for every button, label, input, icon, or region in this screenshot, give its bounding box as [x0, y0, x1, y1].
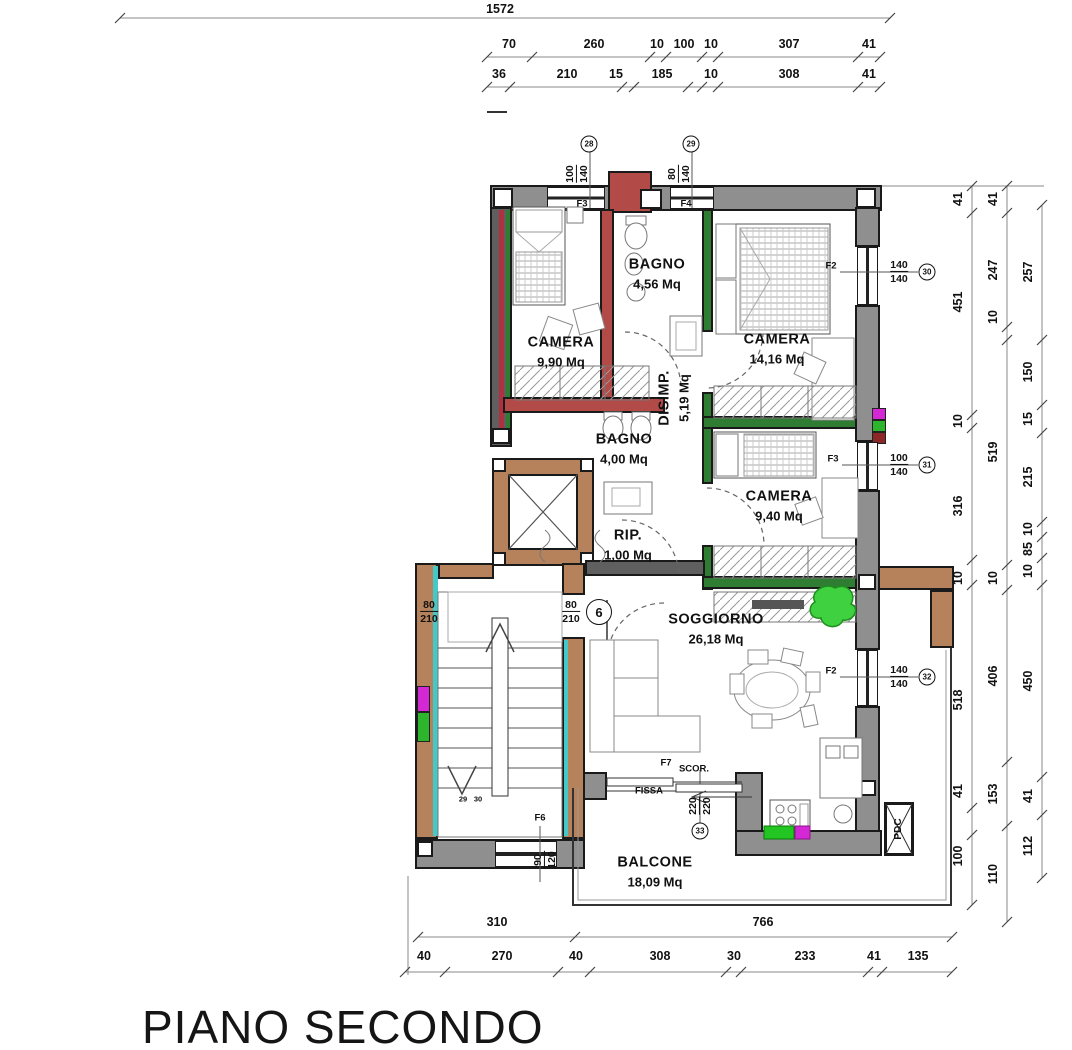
dim-label: 316	[952, 496, 965, 517]
dim-label: 270	[492, 950, 513, 963]
window-size-label: 100140	[890, 452, 908, 478]
door-type-scor: SCOR.	[679, 764, 709, 774]
furniture-kitchen	[764, 738, 862, 839]
window-tag-f6: F6	[534, 813, 545, 823]
dim-label: 41	[862, 38, 876, 51]
window-size-label: 140140	[890, 664, 908, 690]
dim-label: 260	[584, 38, 605, 51]
window-size-label: 80140	[666, 165, 692, 183]
dim-label: 406	[987, 666, 1000, 687]
dim-label: 15	[1022, 412, 1035, 426]
dim-label: 257	[1022, 262, 1035, 283]
opening-number-badge: 32	[919, 669, 936, 686]
dimension-lines	[120, 18, 1044, 975]
room-label-balcone: BALCONE18,09 Mq	[617, 853, 692, 890]
stair-step-mark: 30	[474, 795, 482, 803]
dim-label: 100	[674, 38, 695, 51]
window-tag-f3-right: F3	[827, 454, 838, 464]
dim-label: 766	[753, 916, 774, 929]
dim-label: 153	[987, 784, 1000, 805]
dim-label: 70	[502, 38, 516, 51]
dim-label: 185	[652, 68, 673, 81]
dim-label: 233	[795, 950, 816, 963]
floor-plan-drawing	[0, 0, 1072, 1050]
dim-label: 518	[952, 690, 965, 711]
floor-plan-page: 1572 70 260 10 100 10 307 41 36 210 15 1…	[0, 0, 1072, 1050]
room-label-soggiorno: SOGGIORNO26,18 Mq	[668, 610, 764, 647]
dim-label: 100	[952, 846, 965, 867]
door-tag-f7: F7	[660, 758, 671, 768]
dim-label: 308	[650, 950, 671, 963]
dimension-ticks	[115, 13, 1047, 977]
dim-label: 40	[569, 950, 583, 963]
dim-label: 10	[704, 38, 718, 51]
furniture-camera2	[714, 224, 856, 420]
room-label-bagno1: BAGNO4,56 Mq	[629, 255, 685, 292]
pdc-label: PDC	[894, 818, 904, 839]
room-label-disimpegno: DISIMP.5,19 Mq	[655, 370, 692, 426]
window-tag-f2-lower: F2	[825, 666, 836, 676]
dim-label: 210	[557, 68, 578, 81]
dim-label: 10	[952, 571, 965, 585]
dim-label: 10	[1022, 564, 1035, 578]
dim-label: 450	[1022, 671, 1035, 692]
elevator-cross	[508, 474, 578, 550]
window-size-label: 90120	[532, 851, 558, 869]
dim-label: 41	[1022, 789, 1035, 803]
door-size-label: 220220	[687, 797, 713, 815]
room-label-camera1: CAMERA9,90 Mq	[528, 333, 595, 370]
dim-label: 110	[987, 864, 1000, 884]
dim-label: 41	[862, 68, 876, 81]
door-size-label: 80210	[420, 599, 438, 625]
dim-label: 85	[1022, 542, 1035, 556]
entry-door-number-badge: 6	[586, 599, 612, 625]
dim-label: 40	[417, 950, 431, 963]
dim-label: 247	[987, 260, 1000, 281]
window-tag-f3-top: F3	[576, 199, 587, 209]
dim-label: 150	[1022, 362, 1035, 383]
rip-folding-door	[540, 530, 605, 562]
dim-label: 112	[1022, 836, 1035, 856]
dim-label: 1572	[486, 3, 514, 16]
room-label-camera2: CAMERA14,16 Mq	[744, 330, 811, 367]
dim-label: 30	[727, 950, 741, 963]
stair-step-mark: 29	[459, 795, 467, 803]
door-size-label: 80210	[562, 599, 580, 625]
room-label-camera3: CAMERA9,40 Mq	[746, 487, 813, 524]
dim-label: 310	[487, 916, 508, 929]
opening-number-badge: 29	[683, 136, 700, 153]
dim-label: 135	[908, 950, 929, 963]
opening-number-badge: 28	[581, 136, 598, 153]
dim-label: 41	[952, 192, 965, 206]
window-tag-f4-top: F4	[680, 199, 691, 209]
dim-label: 215	[1022, 467, 1035, 488]
dim-label: 10	[987, 571, 1000, 585]
dim-label: 10	[987, 310, 1000, 324]
sliding-door-f7	[607, 778, 752, 803]
window-size-label: 100140	[564, 165, 590, 183]
dim-label: 41	[952, 784, 965, 798]
dim-label: 10	[704, 68, 718, 81]
dim-label: 41	[987, 192, 1000, 206]
window-size-label: 140140	[890, 259, 908, 285]
dim-label: 307	[779, 38, 800, 51]
opening-number-badge: 30	[919, 264, 936, 281]
dim-label: 519	[987, 442, 1000, 463]
dim-label: 41	[867, 950, 881, 963]
dim-label: 308	[779, 68, 800, 81]
page-title: PIANO SECONDO	[142, 1000, 544, 1050]
dim-label: 10	[650, 38, 664, 51]
staircase	[438, 592, 562, 837]
room-label-ripostiglio: RIP.1,00 Mq	[604, 526, 652, 563]
opening-number-badge: 33	[692, 823, 709, 840]
dim-label: 10	[952, 414, 965, 428]
door-fixed-label: FISSA	[635, 786, 663, 796]
dim-label: 10	[1022, 522, 1035, 536]
dim-label: 451	[952, 292, 965, 313]
room-label-bagno2: BAGNO4,00 Mq	[596, 430, 652, 467]
dim-label: 15	[609, 68, 623, 81]
dim-label: 36	[492, 68, 506, 81]
opening-number-badge: 31	[919, 457, 936, 474]
window-tag-f2-upper: F2	[825, 261, 836, 271]
